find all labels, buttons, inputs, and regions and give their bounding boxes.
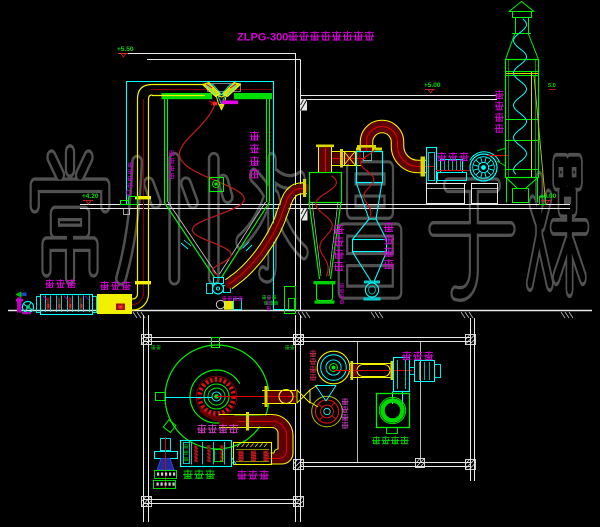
svg-text:ZLPG-300: ZLPG-300 <box>237 32 288 44</box>
svg-text:+5.50: +5.50 <box>117 46 134 53</box>
svg-text:5.0: 5.0 <box>548 83 556 89</box>
svg-text:+4.20: +4.20 <box>82 193 99 200</box>
svg-text:+5.00: +5.00 <box>424 82 441 89</box>
